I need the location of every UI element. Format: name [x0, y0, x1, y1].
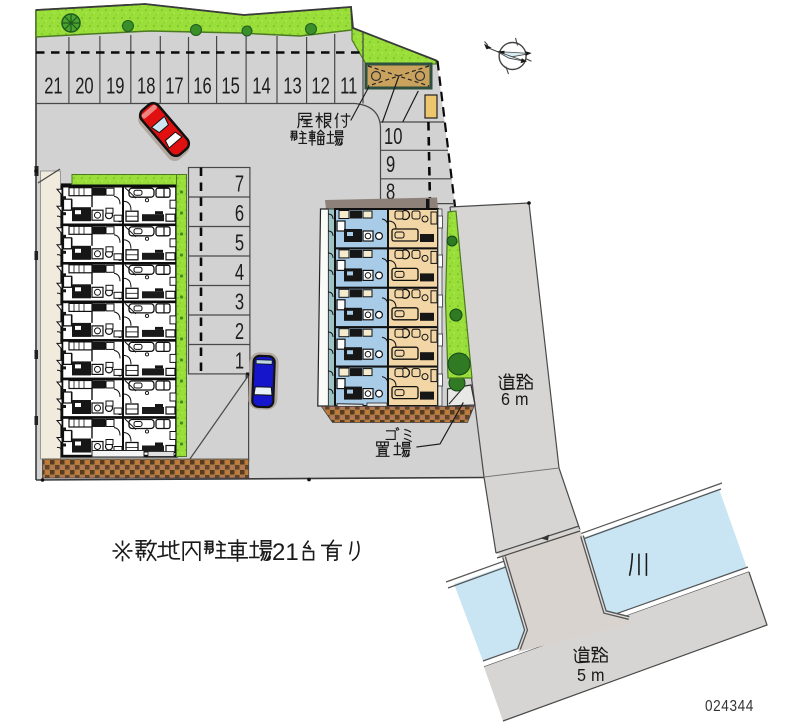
svg-text:19: 19 — [106, 74, 124, 99]
svg-text:5: 5 — [577, 665, 586, 685]
svg-text:1: 1 — [235, 349, 244, 374]
svg-text:6: 6 — [235, 201, 244, 226]
svg-text:7: 7 — [235, 172, 244, 197]
svg-text:14: 14 — [252, 74, 270, 99]
svg-text:10: 10 — [384, 124, 402, 149]
svg-text:5: 5 — [235, 231, 244, 256]
svg-text:17: 17 — [165, 74, 183, 99]
svg-text:3: 3 — [235, 290, 244, 315]
svg-text:16: 16 — [193, 74, 211, 99]
svg-text:12: 12 — [311, 74, 329, 99]
svg-text:m: m — [515, 389, 528, 409]
svg-text:4: 4 — [235, 260, 244, 285]
svg-text:11: 11 — [340, 74, 357, 99]
svg-text:2: 2 — [235, 319, 244, 344]
svg-text:18: 18 — [137, 74, 155, 99]
svg-text:21: 21 — [272, 539, 299, 566]
svg-text:6: 6 — [501, 389, 510, 409]
svg-text:024344: 024344 — [705, 698, 754, 715]
svg-text:13: 13 — [283, 74, 301, 99]
svg-text:20: 20 — [75, 74, 93, 99]
svg-text:15: 15 — [221, 74, 239, 99]
svg-text:21: 21 — [44, 74, 62, 99]
svg-text:m: m — [591, 665, 604, 685]
svg-text:9: 9 — [386, 152, 395, 177]
